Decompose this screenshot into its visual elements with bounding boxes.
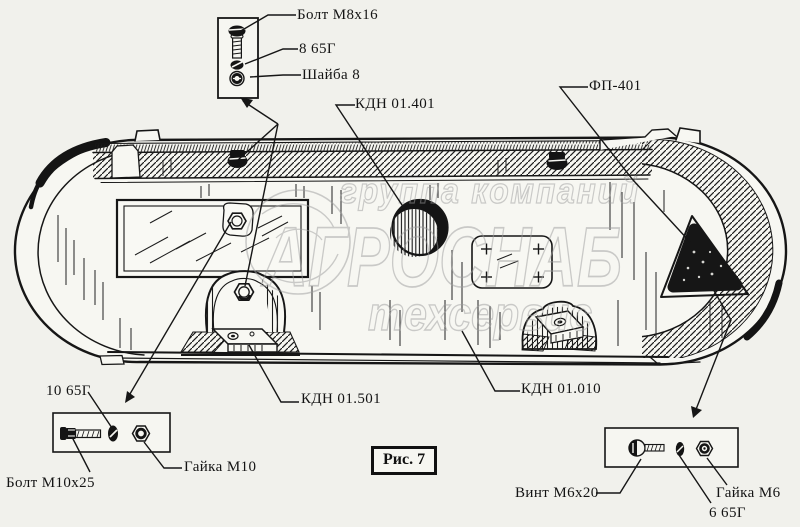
label-kdn-01-401: КДН 01.401 — [355, 97, 435, 112]
fastener-box-bottom-left — [53, 413, 170, 452]
figure-7-drawing: группа компаний АГРОСНАБ техсервис — [0, 0, 800, 527]
spring-washer-10-drawing — [108, 426, 118, 442]
figure-caption: Рис. 7 — [371, 446, 437, 475]
fastener-box-bottom-right — [605, 428, 738, 467]
label-fp-401: ФП-401 — [589, 79, 642, 94]
label-screw-m6: Винт М6х20 — [515, 486, 599, 501]
fastener-box-top — [218, 18, 258, 98]
watermark-line1: группа компаний — [340, 170, 640, 211]
label-spring-washer-10: 10 65Г — [46, 384, 91, 399]
band-screw-left — [228, 150, 248, 168]
label-bolt-m8: Болт М8х16 — [297, 8, 378, 23]
spring-washer-8-drawing — [231, 60, 244, 69]
label-washer-8: Шайба 8 — [302, 68, 360, 83]
label-kdn-01-010: КДН 01.010 — [521, 382, 601, 397]
label-bolt-m10: Болт М10х25 — [6, 476, 95, 491]
label-nut-m10: Гайка М10 — [184, 460, 256, 475]
watermark-line3: техсервис — [368, 287, 592, 340]
label-kdn-01-501: КДН 01.501 — [301, 392, 381, 407]
label-nut-m6: Гайка М6 — [716, 486, 781, 501]
label-spring-washer-6: 6 65Г — [709, 506, 746, 521]
band-clip-notch — [112, 145, 140, 178]
label-spring-washer-8: 8 65Г — [299, 42, 336, 57]
band-screw-middle — [547, 152, 568, 170]
spring-washer-6-drawing — [676, 442, 684, 456]
nut-m10-drawing — [133, 426, 150, 441]
nut-m6-drawing — [697, 442, 713, 456]
top-tab-left — [135, 130, 160, 141]
washer-8-drawing — [230, 72, 244, 86]
